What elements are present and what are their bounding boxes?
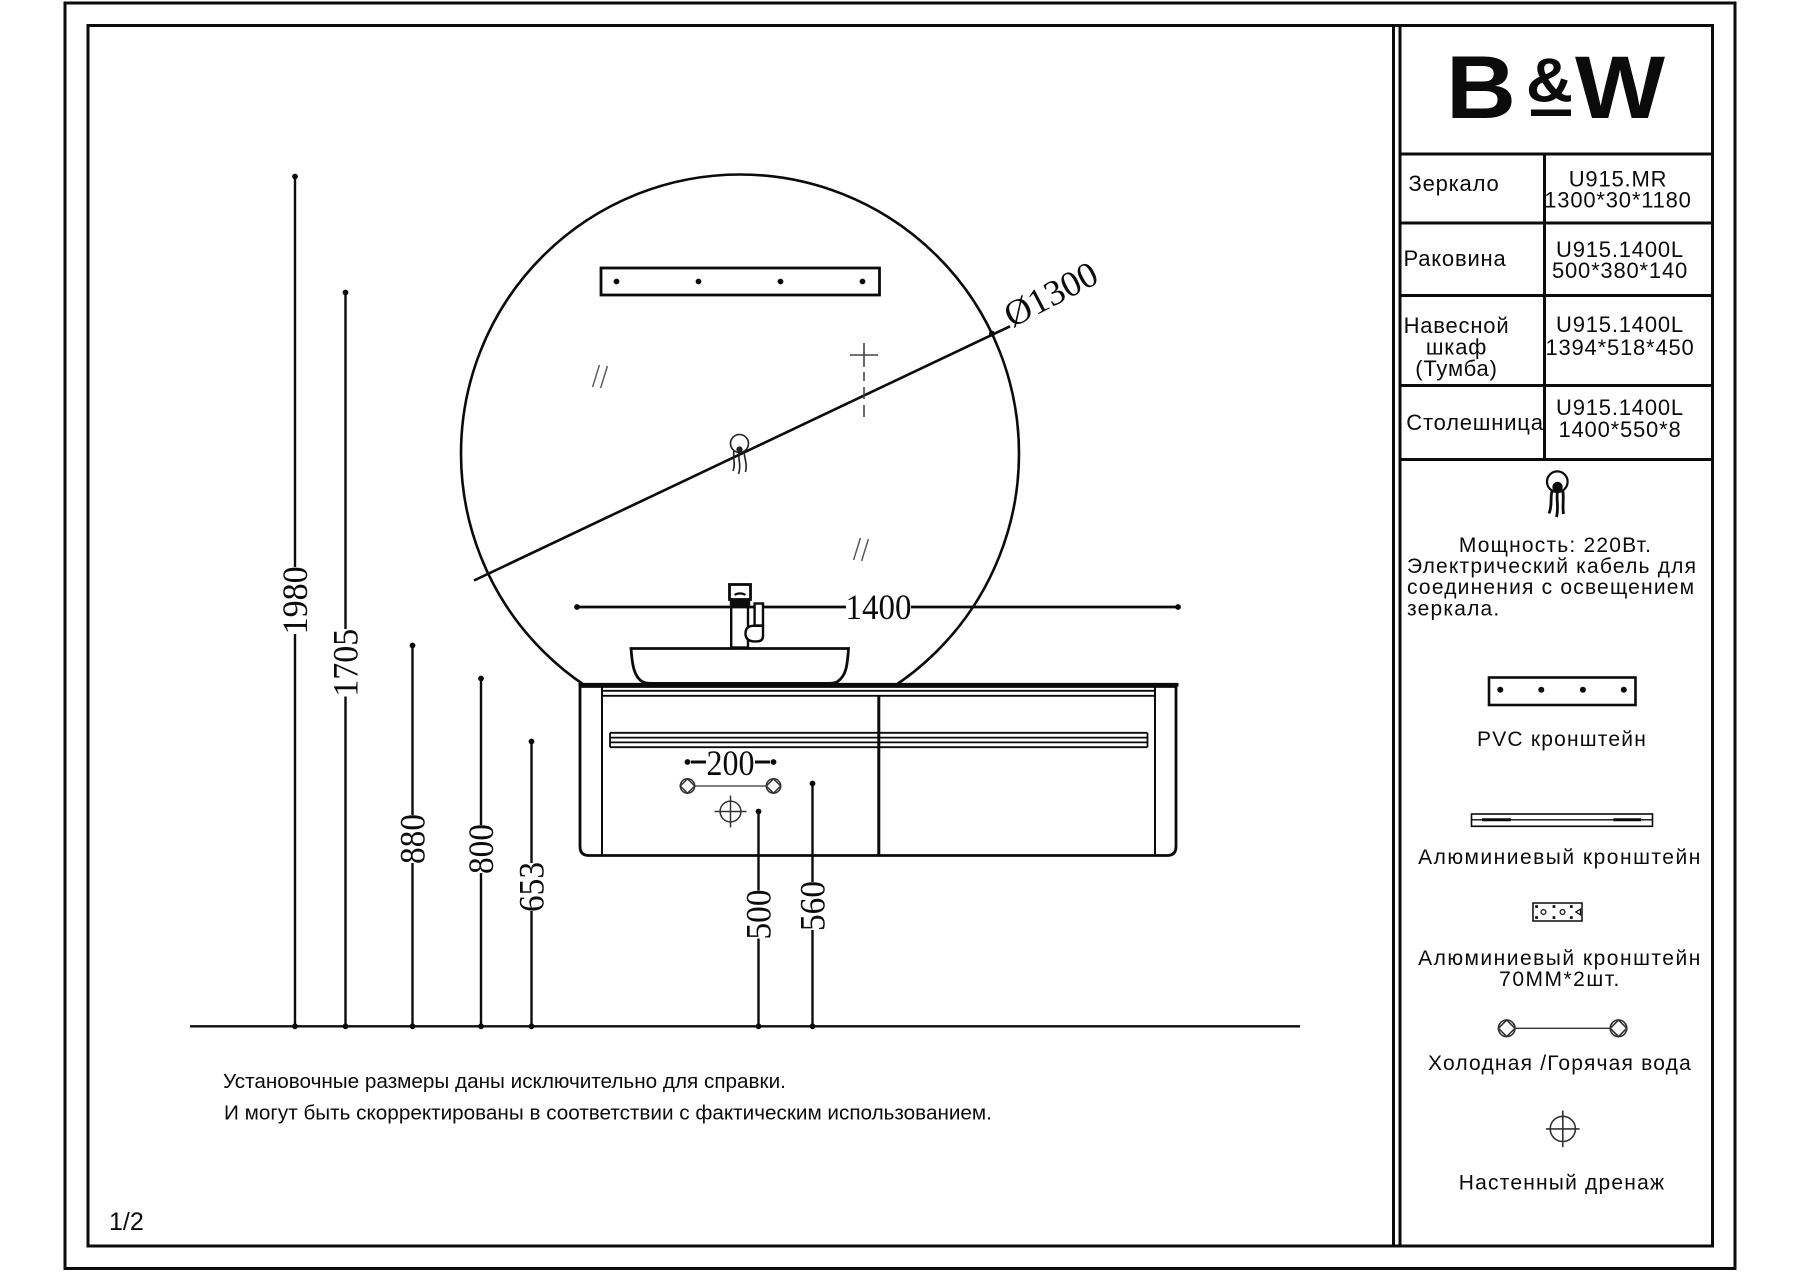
svg-text:&: & [1526, 47, 1573, 116]
svg-text:B: B [1446, 37, 1516, 137]
svg-text:W: W [1575, 37, 1665, 137]
svg-text:Алюминиевый кронштейн: Алюминиевый кронштейн [1418, 846, 1702, 869]
svg-text:Столешница: Столешница [1406, 410, 1543, 435]
svg-text:500*380*140: 500*380*140 [1552, 258, 1688, 283]
svg-text:1394*518*450: 1394*518*450 [1545, 335, 1694, 360]
svg-text:653: 653 [512, 862, 552, 912]
svg-text:Раковина: Раковина [1403, 246, 1506, 271]
svg-text:Зеркало: Зеркало [1408, 171, 1499, 196]
svg-text:(Тумба): (Тумба) [1415, 356, 1497, 381]
svg-text:соединения с освещением: соединения с освещением [1407, 576, 1695, 599]
svg-text:880: 880 [393, 814, 433, 864]
svg-text:1705: 1705 [326, 629, 366, 697]
svg-text:Электрический кабель для: Электрический кабель для [1407, 555, 1697, 578]
svg-text:1980: 1980 [275, 566, 315, 634]
svg-text:Установочные размеры даны искл: Установочные размеры даны исключительно … [223, 1070, 786, 1093]
svg-text:200: 200 [707, 743, 755, 783]
svg-text:800: 800 [461, 824, 501, 874]
svg-text:1300*30*1180: 1300*30*1180 [1544, 188, 1691, 213]
svg-text:И могут быть скорректированы в: И могут быть скорректированы в соответст… [224, 1102, 992, 1125]
svg-text:500: 500 [739, 890, 779, 940]
svg-text:Настенный дренаж: Настенный дренаж [1459, 1172, 1665, 1195]
svg-text:Мощность: 220Вт.: Мощность: 220Вт. [1459, 534, 1652, 557]
svg-text:70MM*2шт.: 70MM*2шт. [1499, 968, 1621, 991]
svg-text:1400: 1400 [846, 587, 912, 627]
svg-text:Холодная /Горячая вода: Холодная /Горячая вода [1428, 1052, 1692, 1075]
svg-text:560: 560 [793, 881, 833, 931]
svg-text:1400*550*8: 1400*550*8 [1558, 417, 1681, 442]
svg-text:U915.1400L: U915.1400L [1556, 312, 1684, 337]
svg-text:PVC кронштейн: PVC кронштейн [1477, 728, 1647, 751]
svg-text:1/2: 1/2 [109, 1208, 144, 1236]
svg-text:Алюминиевый кронштейн: Алюминиевый кронштейн [1418, 947, 1702, 970]
svg-text:зеркала.: зеркала. [1407, 598, 1500, 621]
